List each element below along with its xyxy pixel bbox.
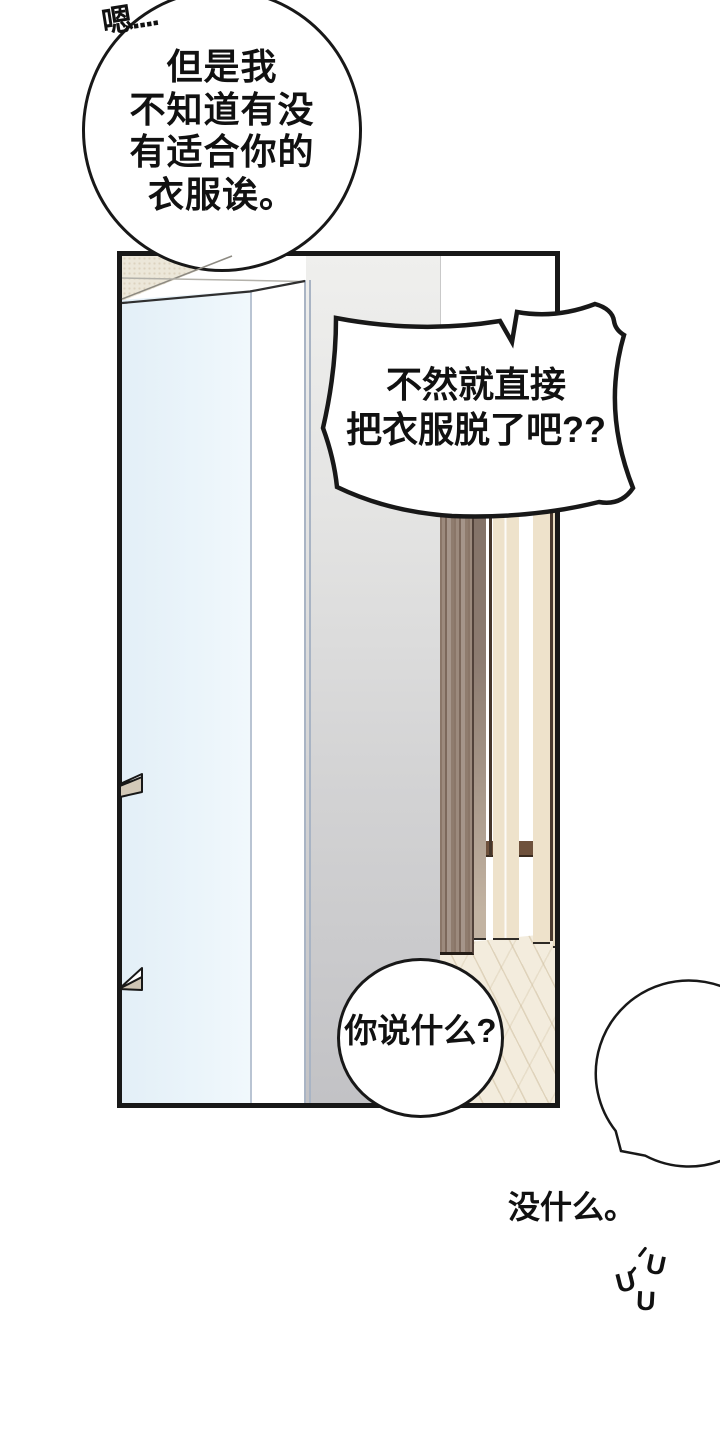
door-frame-line	[304, 280, 306, 1103]
wood-slat	[493, 441, 519, 940]
mumble-u: U	[613, 1267, 638, 1298]
thought-line: 衣服诶。	[82, 174, 362, 217]
mumble-u: U	[635, 1288, 656, 1316]
thought-bubble-text: 但是我 不知道有没 有适合你的 衣服诶。	[82, 46, 362, 216]
reply-bubble-text: 没什么。	[479, 1189, 665, 1225]
question-bubble-text: 你说什么?	[337, 1013, 504, 1049]
burst-line: 不然就直接	[330, 362, 622, 407]
mumble-tick	[638, 1246, 648, 1257]
comic-page: 嗯.... 但是我 不知道有没 有适合你的 衣服诶。 不然就直接 把衣服脱了吧?…	[0, 0, 720, 1440]
burst-bubble-text: 不然就直接 把衣服脱了吧??	[330, 362, 622, 452]
mumble-marks: U U U	[614, 1246, 684, 1316]
burst-line: 把衣服脱了吧??	[330, 407, 622, 452]
wood-plank-dark	[440, 436, 474, 955]
wood-slat	[533, 441, 550, 944]
speech-bubble-reply	[596, 980, 720, 1166]
wood-rail	[517, 841, 533, 857]
thought-line: 有适合你的	[82, 131, 362, 174]
wardrobe-door-face	[252, 277, 306, 1103]
wood-plank-taupe	[474, 436, 486, 940]
thought-line: 不知道有没	[82, 89, 362, 132]
slat-gap-shadow	[489, 441, 492, 856]
wardrobe-door-glass	[122, 290, 251, 1103]
wood-slat	[553, 441, 555, 948]
mumble-u: U	[643, 1250, 668, 1280]
thought-line: 但是我	[82, 46, 362, 89]
door-frame-line	[309, 280, 311, 1103]
